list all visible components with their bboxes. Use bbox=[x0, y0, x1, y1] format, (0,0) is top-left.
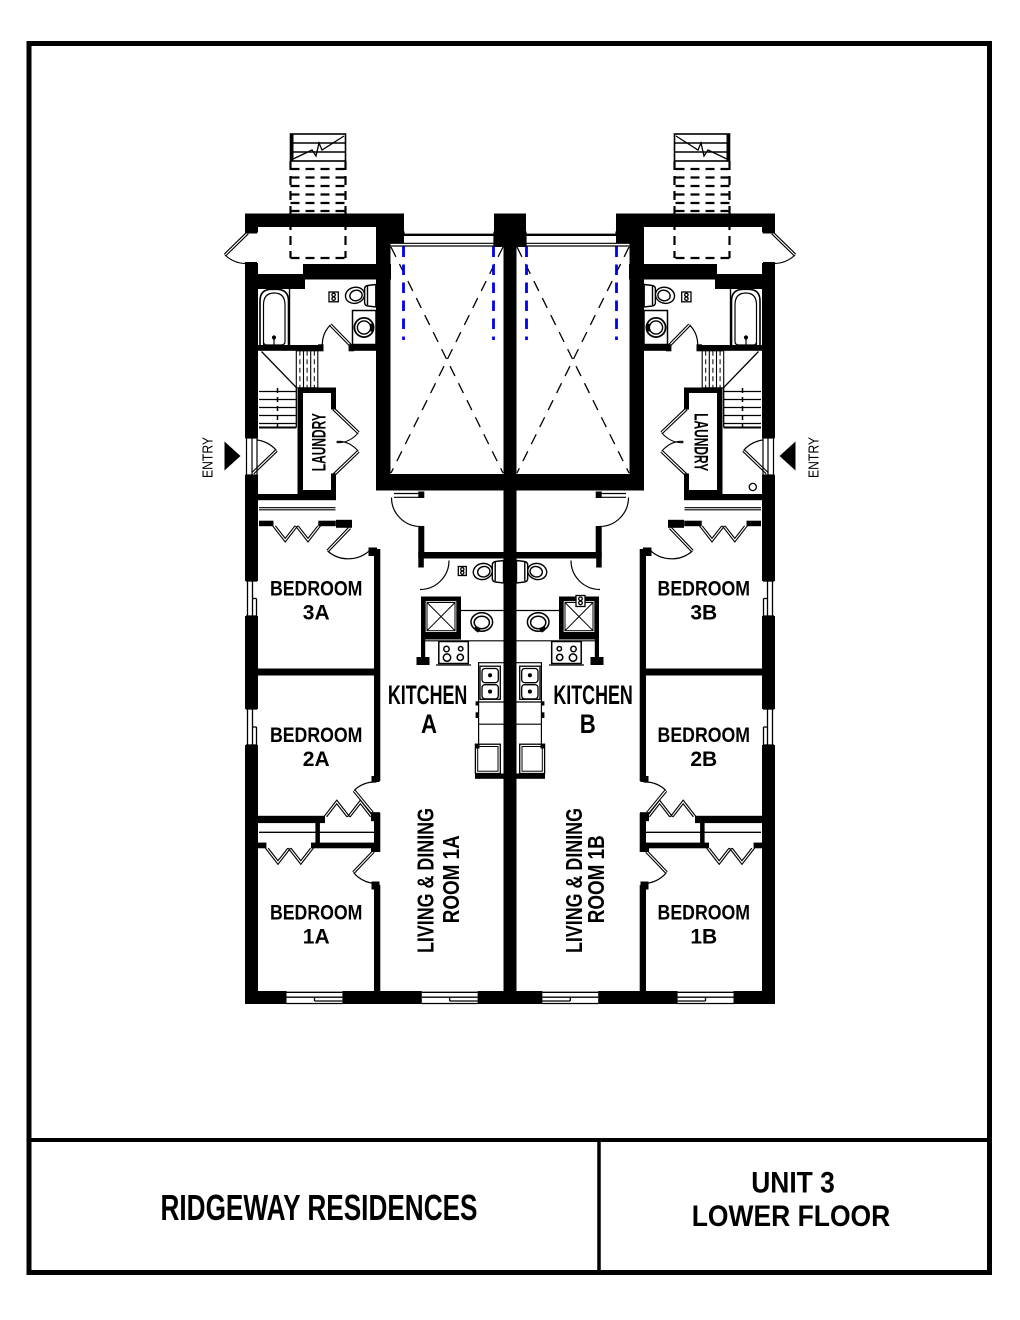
svg-text:BEDROOM: BEDROOM bbox=[658, 724, 751, 747]
svg-text:BEDROOM: BEDROOM bbox=[270, 578, 363, 601]
svg-text:B: B bbox=[580, 709, 596, 739]
svg-text:BEDROOM: BEDROOM bbox=[658, 902, 751, 925]
svg-text:RIDGEWAY RESIDENCES: RIDGEWAY RESIDENCES bbox=[161, 1187, 478, 1228]
svg-text:LAUNDRY: LAUNDRY bbox=[690, 413, 712, 471]
svg-text:ENTRY: ENTRY bbox=[806, 437, 823, 478]
svg-text:UNIT 3: UNIT 3 bbox=[751, 1167, 835, 1200]
svg-text:1A: 1A bbox=[303, 926, 330, 949]
svg-text:LAUNDRY: LAUNDRY bbox=[309, 413, 331, 471]
svg-text:3B: 3B bbox=[690, 602, 717, 625]
svg-text:LIVING & DINING: LIVING & DINING bbox=[412, 808, 438, 953]
svg-text:KITCHEN: KITCHEN bbox=[388, 680, 467, 710]
svg-text:ENTRY: ENTRY bbox=[199, 437, 216, 478]
svg-text:1B: 1B bbox=[690, 926, 717, 949]
svg-text:BEDROOM: BEDROOM bbox=[270, 902, 363, 925]
svg-text:ROOM 1A: ROOM 1A bbox=[438, 835, 464, 923]
svg-text:A: A bbox=[421, 709, 437, 739]
svg-text:BEDROOM: BEDROOM bbox=[658, 578, 751, 601]
svg-text:3A: 3A bbox=[303, 602, 330, 625]
svg-text:ROOM 1B: ROOM 1B bbox=[583, 835, 609, 923]
svg-text:KITCHEN: KITCHEN bbox=[553, 680, 632, 710]
svg-text:2A: 2A bbox=[303, 748, 330, 771]
svg-text:2B: 2B bbox=[690, 748, 717, 771]
svg-text:BEDROOM: BEDROOM bbox=[270, 724, 363, 747]
svg-text:LOWER FLOOR: LOWER FLOOR bbox=[692, 1200, 891, 1233]
